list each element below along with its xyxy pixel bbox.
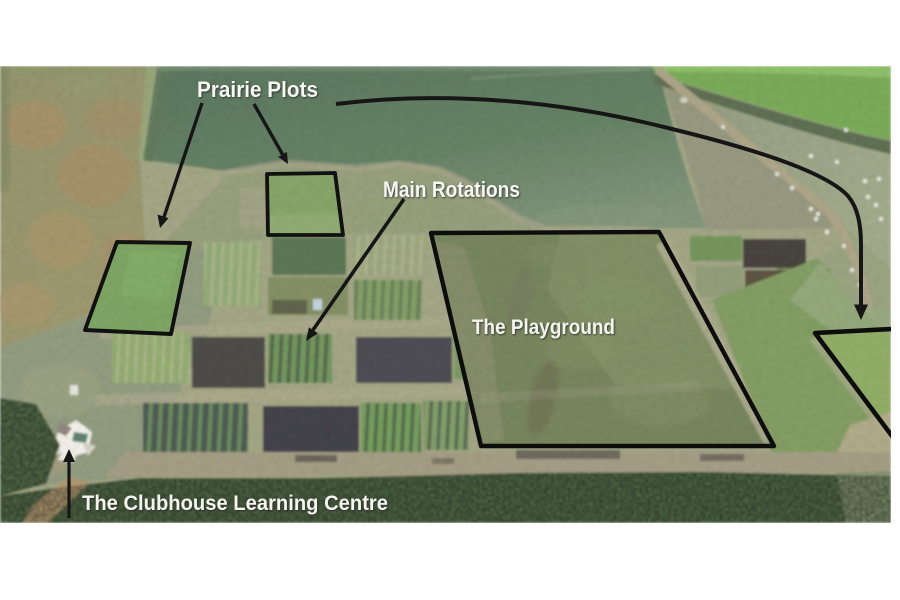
svg-text:The Clubhouse Learning Centre: The Clubhouse Learning Centre — [82, 492, 388, 515]
svg-text:The Playground: The Playground — [472, 316, 615, 339]
svg-text:Main Rotations: Main Rotations — [383, 177, 520, 202]
svg-text:Prairie Plots: Prairie Plots — [197, 77, 318, 102]
